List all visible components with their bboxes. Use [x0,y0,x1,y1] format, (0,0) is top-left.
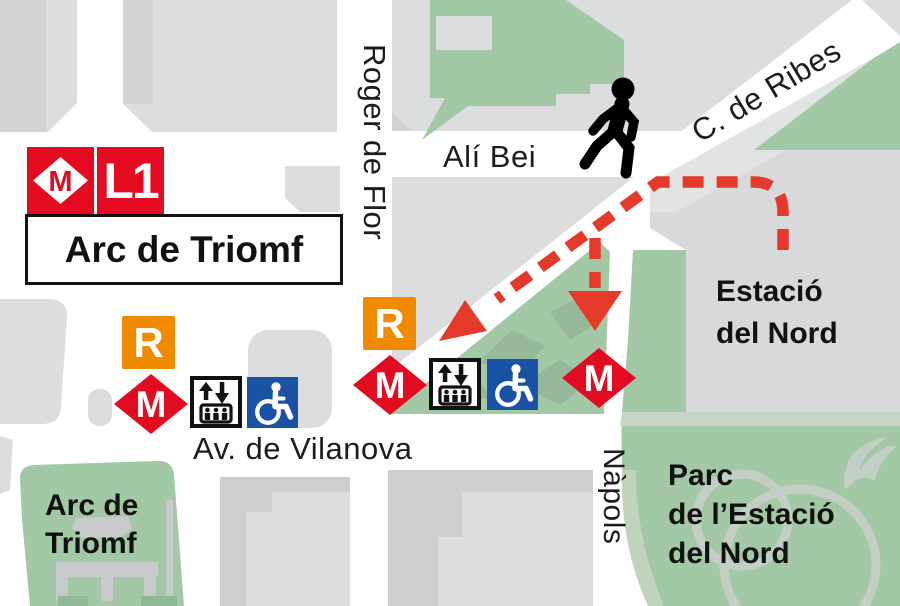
metro-logo-letter: M [48,166,72,198]
metro-diamond-icon-right: M [560,346,638,410]
station-name-box: Arc de Triomf [25,214,343,285]
metro-diamond-icon-plaza: M [351,353,429,417]
metro-label: M [136,384,167,425]
rodalies-square-icon-center: R [363,297,416,350]
street-label-av-de-vilanova: Av. de Vilanova [193,431,413,467]
place-label-arc-de-triomf: Arc de Triomf [45,487,138,563]
wheelchair-accessible-icon-plaza [487,359,538,410]
parc-line3: del Nord [668,534,835,573]
estacio-line2: del Nord [716,313,838,355]
line-badge-l1: L1 [97,147,164,214]
arc-line1: Arc de [45,487,138,525]
rodalies-square-icon-left: R [122,316,175,369]
arc-line2: Triomf [45,525,138,563]
elevator-icon-left [190,376,242,428]
metro-diamond-icon-left: M [112,372,190,436]
elevator-icon-plaza [429,358,481,410]
rodalies-label: R [374,300,404,348]
south-blocks [220,470,593,606]
wheelchair-accessible-icon-left [247,377,298,428]
transit-map: M L1 Arc de Triomf Roger de Flor Alí Bei… [0,0,900,606]
metro-label: M [375,365,406,406]
place-label-parc-estacio: Parc de l’Estació del Nord [668,456,835,573]
metro-diamond-icon: M [27,147,94,214]
street-label-ali-bei: Alí Bei [443,139,536,175]
parc-line2: de l’Estació [668,495,835,534]
metro-label: M [584,358,615,399]
street-label-roger-de-flor: Roger de Flor [356,44,392,240]
street-label-napols: Nàpols [596,448,630,544]
place-label-estacio-del-nord: Estació del Nord [716,271,838,355]
building-notch [436,16,492,50]
line-badge-label: L1 [103,152,157,210]
parc-line1: Parc [668,456,835,495]
rodalies-label: R [133,319,163,367]
station-name: Arc de Triomf [65,229,304,271]
metro-logo: M [27,147,94,214]
estacio-line1: Estació [716,271,838,313]
